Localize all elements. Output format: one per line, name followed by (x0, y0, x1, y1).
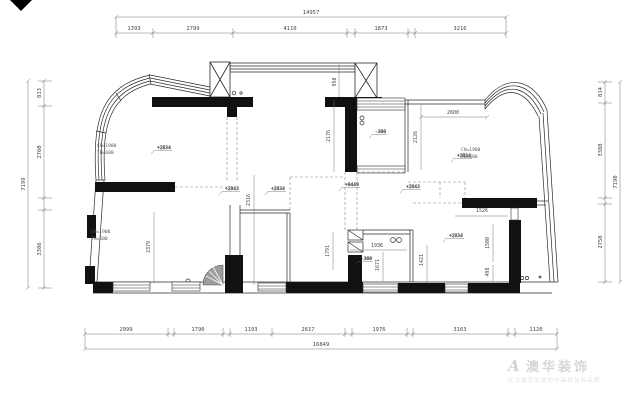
elevation-marker: -300 (369, 129, 387, 138)
dim-interior: 2316 (246, 194, 252, 206)
interior-walls (186, 91, 548, 283)
watermark-brand: 澳华装饰 (526, 359, 590, 375)
dim-bottom-seg: 3163 (453, 327, 466, 333)
svg-text:+2834: +2834 (157, 145, 171, 151)
dim-total-top: 14957 (303, 10, 320, 16)
window-label-line2: TH=600 (91, 236, 108, 242)
dim-top-seg: 2799 (186, 26, 199, 32)
structural-columns (210, 62, 377, 98)
window-label-line2: TH=600 (461, 154, 478, 160)
dim-top-seg: 1393 (127, 26, 140, 32)
dimension-labels: 14957 1393 2799 4110 1873 3216 16849 299… (21, 10, 619, 348)
corner-shower (203, 265, 223, 285)
dim-total-left: 7199 (21, 177, 27, 190)
dim-interior: 2176 (326, 130, 332, 142)
window-label-line1: CH=1900 (97, 143, 117, 149)
dim-interior: 1500 (485, 237, 491, 249)
dim-interior: 498 (485, 267, 491, 276)
elevation-marker: +2843 (400, 184, 421, 193)
dim-total-right: 7190 (613, 175, 619, 188)
dim-interior: 1526 (476, 208, 488, 214)
svg-text:+2843: +2843 (225, 186, 239, 192)
dim-bottom-seg: 2617 (301, 327, 314, 333)
svg-text:-300: -300 (375, 129, 386, 135)
window-label-line1: CH=1900 (461, 147, 481, 153)
svg-text:+2843: +2843 (406, 184, 420, 190)
dim-bottom-seg: 1976 (372, 327, 385, 333)
solid-walls (85, 97, 537, 293)
dim-interior: 1421 (419, 254, 425, 266)
svg-text:+2834: +2834 (271, 186, 285, 192)
dim-bottom-seg: 1193 (244, 327, 257, 333)
window-label-line1: CH=1900 (91, 229, 111, 235)
dim-interior: 2600 (447, 110, 459, 116)
dim-interior: 2379 (146, 241, 152, 253)
dim-left-seg: 3386 (37, 242, 43, 255)
wall-windows (113, 98, 518, 292)
shelf-icon (357, 98, 405, 110)
dim-bottom-seg: 1120 (529, 327, 542, 333)
dim-left-seg: 2760 (37, 145, 43, 158)
sink-bowl-icon (397, 238, 402, 243)
elevation-marker: +2834 (151, 145, 172, 154)
svg-text:+2834: +2834 (449, 233, 463, 239)
watermark-logo-icon: A (506, 357, 520, 375)
dim-top-seg: 3216 (453, 26, 466, 32)
dashed-guides (175, 117, 465, 230)
window-icon (258, 283, 286, 291)
door-leaf-icon (511, 208, 518, 220)
elevation-marker: +2834 (443, 233, 464, 242)
dim-bottom-seg: 1790 (191, 327, 204, 333)
window-label-line2: TH=600 (97, 150, 114, 156)
corner-arrow-artifact (10, 0, 32, 11)
dim-top-seg: 4110 (283, 26, 296, 32)
elevation-markers: +2834 +2843 +2834 -300 -300 +2834 +2834 … (151, 129, 472, 265)
window-icon (363, 284, 398, 292)
dim-bottom-seg: 2999 (119, 327, 132, 333)
dim-right-seg: 814 (598, 86, 604, 97)
dim-interior: 1936 (371, 243, 383, 249)
sink-bowl-icon (391, 238, 396, 243)
dim-interior: 2126 (413, 131, 419, 143)
window-height-labels: CH=1900 TH=600 CH=1900 TH=600 CH=1900 TH… (91, 143, 481, 242)
dim-right-seg: 3388 (598, 143, 604, 156)
dim-interior: 1791 (325, 245, 331, 257)
floor-plan-page: 14957 1393 2799 4110 1873 3216 16849 299… (0, 0, 640, 400)
window-icon (445, 284, 468, 292)
dim-left-seg: 813 (37, 88, 43, 98)
window-icon (113, 282, 150, 291)
dim-total-bottom: 16849 (313, 342, 330, 348)
svg-text:-300: -300 (361, 256, 372, 262)
dim-top-seg: 1873 (374, 26, 387, 32)
svg-text:+0449: +0449 (345, 182, 359, 188)
dim-interior: 1671 (375, 259, 381, 271)
floor-plan-drawing: 14957 1393 2799 4110 1873 3216 16849 299… (0, 0, 640, 400)
elevation-marker: +2843 (219, 186, 240, 195)
dim-right-seg: 2758 (598, 235, 604, 248)
watermark-tagline: 武汉最受欢迎的中高档装饰品牌 (508, 376, 600, 384)
elevation-marker: +2834 (265, 186, 286, 195)
window-icon (172, 282, 200, 291)
watermark: A 澳华装饰 武汉最受欢迎的中高档装饰品牌 (506, 357, 600, 384)
dim-interior: 950 (332, 77, 338, 86)
